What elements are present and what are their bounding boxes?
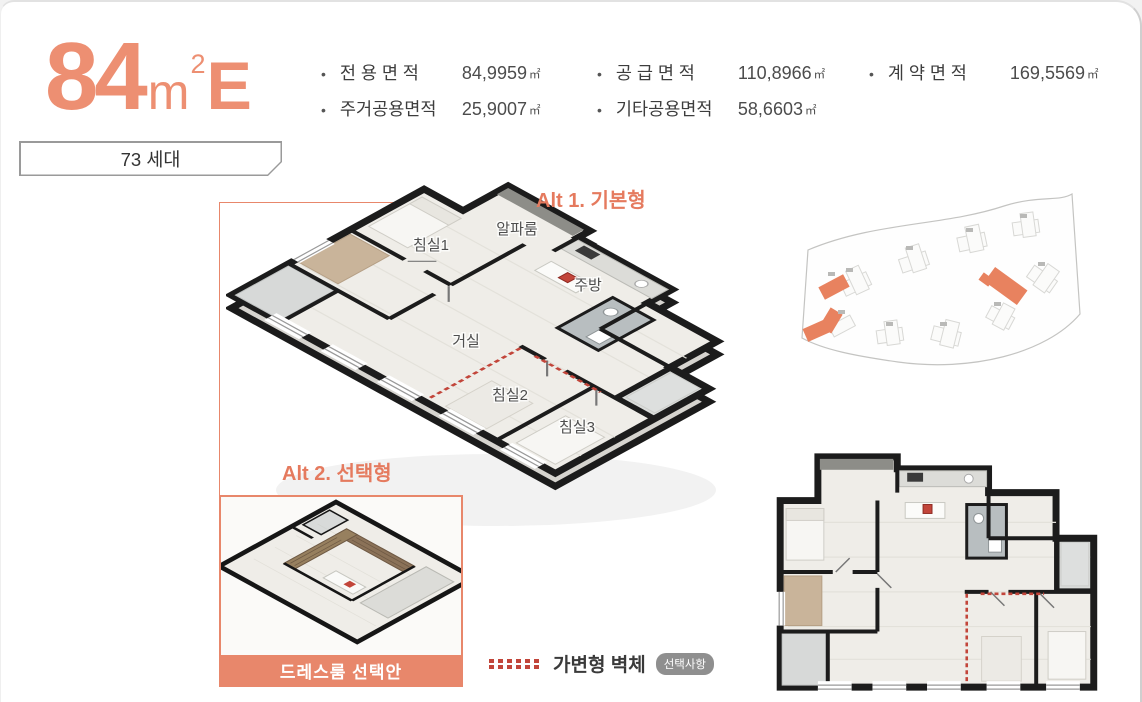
bullet-icon: • (321, 66, 326, 82)
spec-label: 기타공용면적 (616, 96, 738, 121)
spec-label: 계 약 면 적 (888, 60, 1010, 85)
sqm-unit: ㎡ (814, 66, 826, 82)
unit-size-number: 84 (45, 23, 144, 130)
unit-size-squared: 2 (190, 49, 205, 79)
room-label-bed3: 침실3 (559, 419, 595, 436)
bullet-icon: • (597, 66, 602, 82)
alt2-inset-render (221, 497, 461, 655)
room-label-bed1: 침실1 (413, 237, 449, 254)
unit-type-letter: E (206, 48, 251, 124)
optional-badge: 선택사항 (656, 653, 714, 675)
sqm-unit: ㎡ (529, 102, 541, 118)
bullet-icon: • (597, 102, 602, 118)
room-label-bed2: 침실2 (492, 387, 528, 404)
site-plan (794, 184, 1089, 389)
brochure-page: 84m2E • 전 용 면 적 84,9959 ㎡ • 공 급 면 적 110,… (0, 0, 1142, 702)
sqm-unit: ㎡ (529, 66, 541, 82)
spec-supply-area: • 공 급 면 적 110,8966 ㎡ (597, 60, 825, 85)
unit-type-title: 84m2E (45, 22, 252, 132)
inset-caption: 드레스룸 선택안 (221, 655, 461, 685)
households-badge: 73 세대 (19, 141, 282, 176)
alt2-inset-box: 드레스룸 선택안 (219, 495, 463, 687)
spec-other-common-area: • 기타공용면적 58,6603 ㎡ (597, 96, 816, 121)
bullet-icon: • (869, 66, 874, 82)
alt2-label: Alt 2. 선택형 (282, 457, 392, 486)
spec-value: 169,5569 (1010, 63, 1085, 84)
spec-value: 25,9007 (462, 99, 527, 120)
spec-exclusive-area: • 전 용 면 적 84,9959 ㎡ (321, 60, 540, 85)
spec-contract-area: • 계 약 면 적 169,5569 ㎡ (869, 60, 1098, 85)
spec-label: 주거공용면적 (340, 96, 462, 121)
alt2-leader-line-horizontal (219, 202, 426, 203)
plan-isometric-body (226, 162, 746, 477)
alt-option-marker-dot (425, 198, 435, 208)
spec-residential-common-area: • 주거공용면적 25,9007 ㎡ (321, 96, 540, 121)
spec-label: 전 용 면 적 (340, 60, 462, 85)
sqm-unit: ㎡ (805, 102, 817, 118)
sqm-unit: ㎡ (1087, 66, 1099, 82)
spec-value: 58,6603 (738, 99, 803, 120)
spec-value: 110,8966 (738, 63, 812, 84)
unit-size-m: m (148, 64, 190, 120)
floor-plan-2d (758, 443, 1106, 701)
flexible-wall-legend: 가변형 벽체 선택사항 (489, 650, 714, 677)
room-label-kitchen: 주방 (574, 277, 602, 294)
alt1-label: Alt 1. 기본형 (536, 184, 646, 213)
dashed-wall-icon (489, 657, 541, 671)
households-badge-text: 73 세대 (21, 143, 281, 175)
room-label-alpha: 알파룸 (496, 221, 538, 238)
spec-label: 공 급 면 적 (616, 60, 738, 85)
alt2-leader-line-vertical (219, 202, 220, 495)
plan-wall-skirt (231, 177, 746, 486)
bullet-icon: • (321, 102, 326, 118)
room-label-living: 거실 (452, 333, 480, 350)
spec-value: 84,9959 (462, 63, 527, 84)
legend-label: 가변형 벽체 (553, 650, 646, 677)
